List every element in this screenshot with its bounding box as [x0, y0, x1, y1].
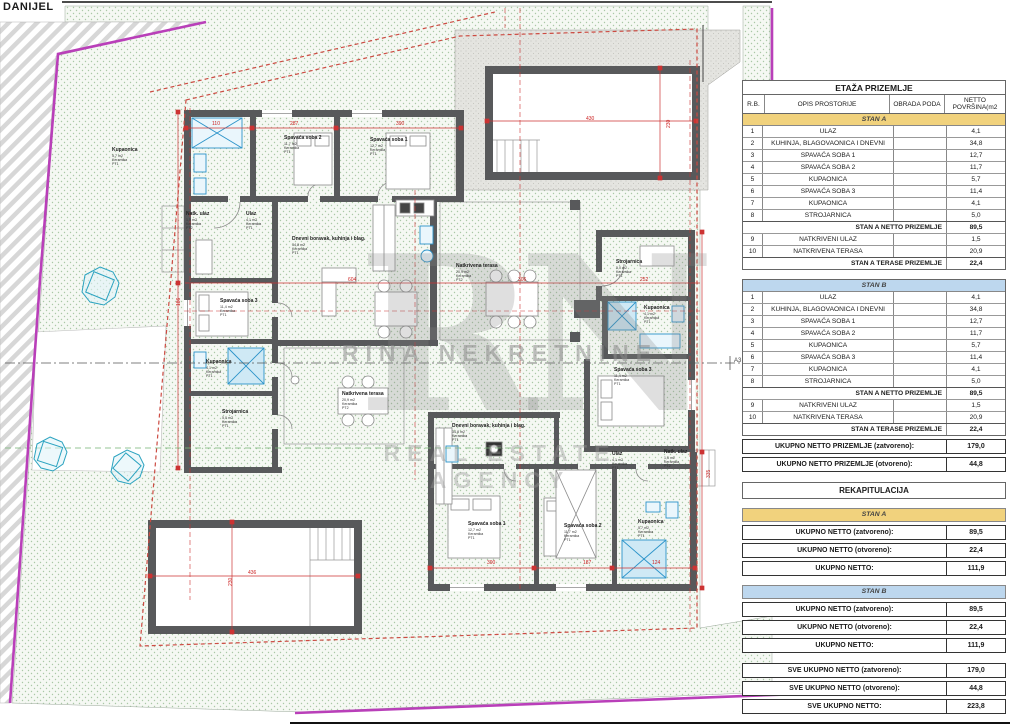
table-row: 6 SPAVAĆA SOBA 3 11,4 [743, 352, 1005, 364]
dimension-number: 186 [176, 298, 182, 306]
dimension-number: 187 [583, 560, 591, 566]
watermark-line1: RINA NEKRETNINE [322, 340, 678, 367]
room-label: Dnevni boravak, kuhinja i blag. 34,8 m2 … [292, 237, 365, 255]
watermark-monogram: RN [358, 238, 697, 432]
table-row: 9 NATKRIVENI ULAZ 1,5 [743, 234, 1005, 246]
rekap-row: UKUPNO NETTO (otvoreno): 22,4 [742, 620, 1006, 635]
dimension-number: 390 [487, 560, 495, 566]
area-table-stan-b: STAN B 1 ULAZ 4,1 2 KUHINJA, BLAGOVAONIC… [742, 279, 1006, 436]
table-row: 7 KUPAONICA 4,1 [743, 198, 1005, 210]
table-row: 2 KUHINJA, BLAGOVAONICA I DNEVNI 34,8 [743, 138, 1005, 150]
room-label: Strojarnica 5,0 m2 Keramika PT1 [616, 260, 642, 278]
sheet-title: DANIJEL [3, 1, 54, 13]
room-label: Kupaonica 4,1 m2 Keramika PT1 [644, 306, 670, 324]
rekap-row: UKUPNO NETTO (otvoreno): 22,4 [742, 543, 1006, 558]
table-row: 10 NATKRIVENA TERASA 20,9 [743, 412, 1005, 423]
band-stan-a: STAN A [743, 114, 1005, 126]
stan-a-terrace-row: STAN A TERASE PRIZEMLJE 22,4 [743, 257, 1005, 269]
total-row: UKUPNO NETTO PRIZEMLJE (zatvoreno): 179,… [742, 439, 1006, 454]
rekap-title: REKAPITULACIJA [742, 482, 1006, 499]
table-row: 8 STROJARNICA 5,0 [743, 210, 1005, 221]
dimension-number: 390 [396, 121, 404, 127]
room-label: Ulaz 4,1 m2 Keramika PT1 [246, 212, 261, 230]
band-stan-b: STAN B [743, 280, 1005, 292]
room-label: Strojarnica 5,0 m2 Keramika PT1 [222, 410, 248, 428]
dimension-number: 335 [706, 470, 712, 478]
room-label: Kupaonica 5,7 m2 Keramika PT1 [112, 148, 138, 166]
table-row: 4 SPAVAĆA SOBA 2 11,7 [743, 162, 1005, 174]
table-row: 5 KUPAONICA 5,7 [743, 174, 1005, 186]
room-label: Natk. ulaz 1,5 m2 Keramika PT2 [186, 212, 209, 230]
rekap-stan-a-rows: UKUPNO NETTO (zatvoreno): 89,5 UKUPNO NE… [742, 525, 1006, 576]
room-label: Ulaz 4,1 m2 Keramika PT1 [612, 452, 627, 470]
table-row: 8 STROJARNICA 5,0 [743, 376, 1005, 387]
grand-total-row: SVE UKUPNO NETTO (zatvoreno): 179,0 [742, 663, 1006, 678]
total-row: UKUPNO NETTO PRIZEMLJE (otvoreno): 44,8 [742, 457, 1006, 472]
col-header-opis: OPIS PROSTORIJE [765, 95, 890, 113]
dimension-number: 306 [518, 277, 526, 283]
stan-a-open-rows: 9 NATKRIVENI ULAZ 1,5 10 NATKRIVENA TERA… [743, 234, 1005, 257]
dimension-number: 252 [640, 277, 648, 283]
table-title: ETAŽA PRIZEMLJE [743, 81, 1005, 95]
rekap-row: UKUPNO NETTO: 111,9 [742, 561, 1006, 576]
stan-a-rows: 1 ULAZ 4,1 2 KUHINJA, BLAGOVAONICA I DNE… [743, 126, 1005, 221]
room-label: Spavaća soba 2 11,7 m2 Keramika PT1 [284, 136, 322, 154]
dimension-number: 124 [652, 560, 660, 566]
table-row: 2 KUHINJA, BLAGOVAONICA I DNEVNI 34,8 [743, 304, 1005, 316]
stan-b-net-row: STAN A NETTO PRIZEMLJE 89,5 [743, 387, 1005, 400]
room-label: Natkrivena terasa 20,9 m2 Keramika PT2 [342, 392, 384, 410]
stan-b-open-rows: 9 NATKRIVENI ULAZ 1,5 10 NATKRIVENA TERA… [743, 400, 1005, 423]
col-header-obrada: OBRADA PODA [890, 95, 945, 113]
col-header-netto: NETTOPOVRŠINA(m2 [945, 95, 1005, 113]
room-label: Natkrivena terasa 20,9 m2 Keramika PT2 [456, 264, 498, 282]
rekap-row: UKUPNO NETTO (zatvoreno): 89,5 [742, 602, 1006, 617]
room-label: Spavaća soba 3 11,4 m2 Keramika PT1 [220, 299, 258, 317]
rekap-row: UKUPNO NETTO (zatvoreno): 89,5 [742, 525, 1006, 540]
rekap-band-stan-a: STAN A [742, 508, 1006, 522]
grand-total-row: SVE UKUPNO NETTO: 223,8 [742, 699, 1006, 714]
ground-floor-totals: UKUPNO NETTO PRIZEMLJE (zatvoreno): 179,… [742, 439, 1006, 472]
room-label: Spavaća soba 2 11,7 m2 Keramika PT1 [564, 524, 602, 542]
table-row: 6 SPAVAĆA SOBA 3 11,4 [743, 186, 1005, 198]
rekap-row: UKUPNO NETTO: 111,9 [742, 638, 1006, 653]
stan-b-rows: 1 ULAZ 4,1 2 KUHINJA, BLAGOVAONICA I DNE… [743, 292, 1005, 387]
dimension-number: 604 [348, 277, 356, 283]
dimension-number: 287 [290, 121, 298, 127]
dimension-number: 436 [248, 570, 256, 576]
table-row: 3 SPAVAĆA SOBA 1 12,7 [743, 316, 1005, 328]
table-row: 1 ULAZ 4,1 [743, 292, 1005, 304]
grand-total-rows: SVE UKUPNO NETTO (zatvoreno): 179,0 SVE … [742, 663, 1006, 714]
table-row: 10 NATKRIVENA TERASA 20,9 [743, 246, 1005, 257]
stan-a-net-row: STAN A NETTO PRIZEMLJE 89,5 [743, 221, 1005, 234]
room-label: Kupaonica 5,7 m2 Keramika PT1 [638, 520, 664, 538]
room-label: Spavaća soba 3 11,4 m2 Keramika PT1 [614, 368, 652, 386]
table-row: 1 ULAZ 4,1 [743, 126, 1005, 138]
grand-total-row: SVE UKUPNO NETTO (otvoreno): 44,8 [742, 681, 1006, 696]
stan-b-terrace-row: STAN A TERASE PRIZEMLJE 22,4 [743, 423, 1005, 435]
room-label: Dnevni boravak, kuhinja i blag. 34,8 m2 … [452, 424, 525, 442]
dimension-number: 110 [212, 121, 220, 127]
section-marker-a3: A3 [734, 358, 741, 364]
table-row: 4 SPAVAĆA SOBA 2 11,7 [743, 328, 1005, 340]
room-label: Spavaća soba 1 12,7 m2 Keramika PT1 [370, 138, 408, 156]
area-table-panel: ETAŽA PRIZEMLJE R.B. OPIS PROSTORIJE OBR… [742, 80, 1006, 714]
dimension-number: 430 [586, 116, 594, 122]
table-row: 9 NATKRIVENI ULAZ 1,5 [743, 400, 1005, 412]
col-header-rb: R.B. [743, 95, 765, 113]
table-row: 3 SPAVAĆA SOBA 1 12,7 [743, 150, 1005, 162]
table-row: 5 KUPAONICA 5,7 [743, 340, 1005, 352]
table-header-row: R.B. OPIS PROSTORIJE OBRADA PODA NETTOPO… [743, 95, 1005, 114]
rekap-band-stan-b: STAN B [742, 585, 1006, 599]
room-label: Spavaća soba 1 12,7 m2 Keramika PT1 [468, 522, 506, 540]
area-table: ETAŽA PRIZEMLJE R.B. OPIS PROSTORIJE OBR… [742, 80, 1006, 270]
room-label: Kupaonica 4,1 m2 Keramika PT1 [206, 360, 232, 378]
table-row: 7 KUPAONICA 4,1 [743, 364, 1005, 376]
dimension-number: 230 [666, 120, 672, 128]
room-label: Natk. ulaz 1,5 m2 Keramika PT2 [664, 450, 687, 468]
rekap-stan-b-rows: UKUPNO NETTO (zatvoreno): 89,5 UKUPNO NE… [742, 602, 1006, 653]
dimension-number: 230 [228, 578, 234, 586]
floor-plan-sheet: RN RINA NEKRETNINE REAL ESTATE AGENCY DA… [0, 0, 1010, 726]
